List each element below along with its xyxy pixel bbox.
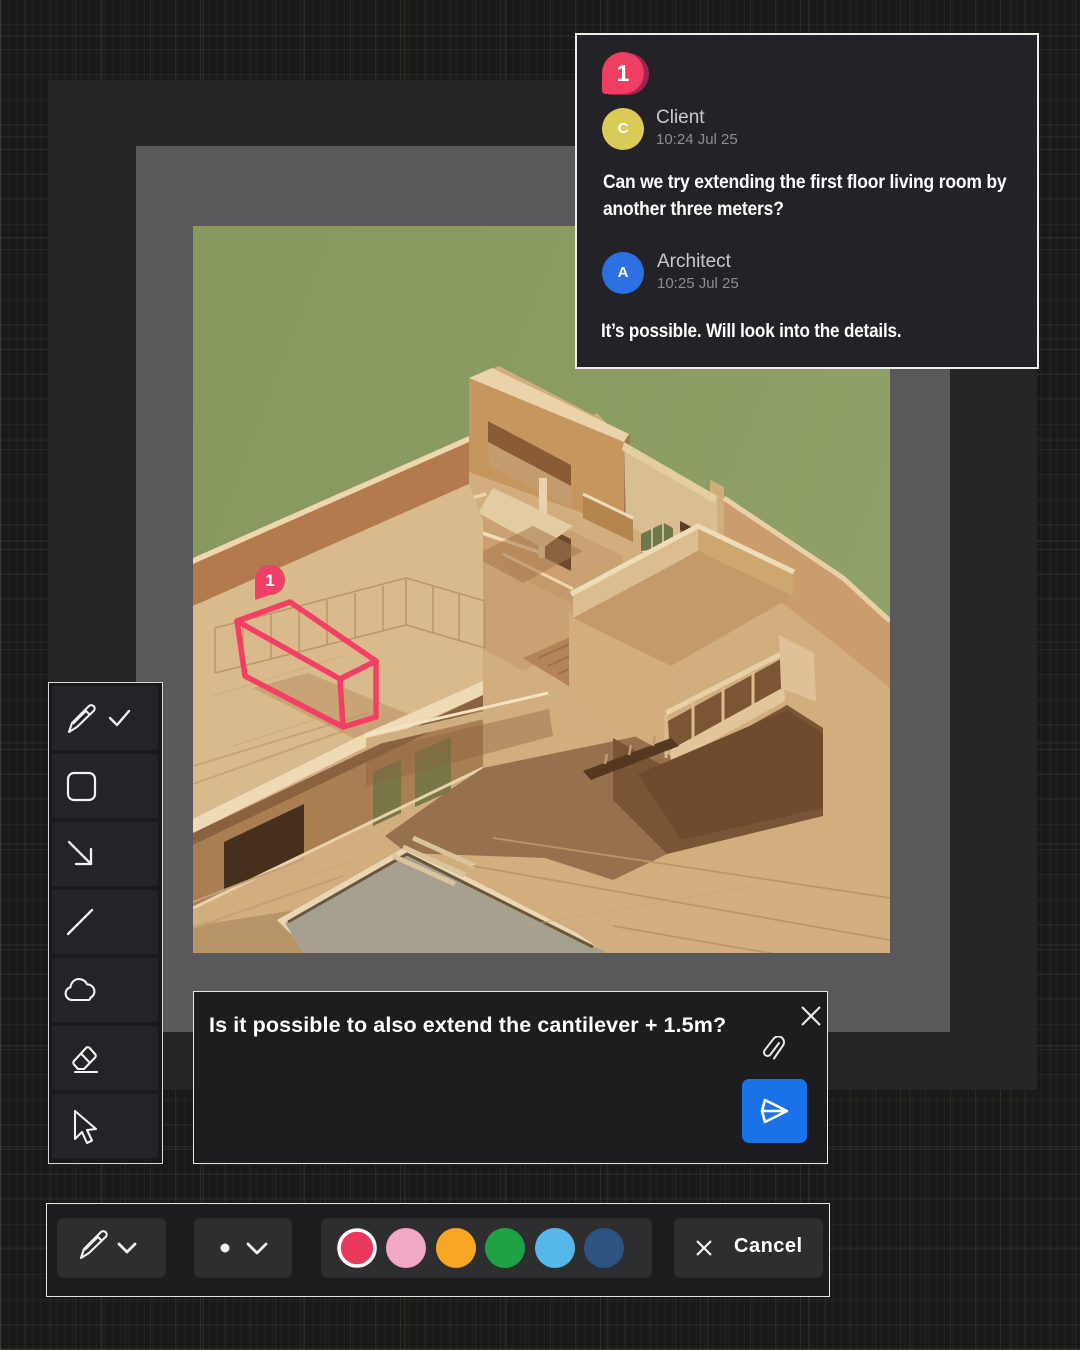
svg-text:1: 1	[617, 60, 630, 86]
svg-text:1: 1	[265, 571, 274, 590]
